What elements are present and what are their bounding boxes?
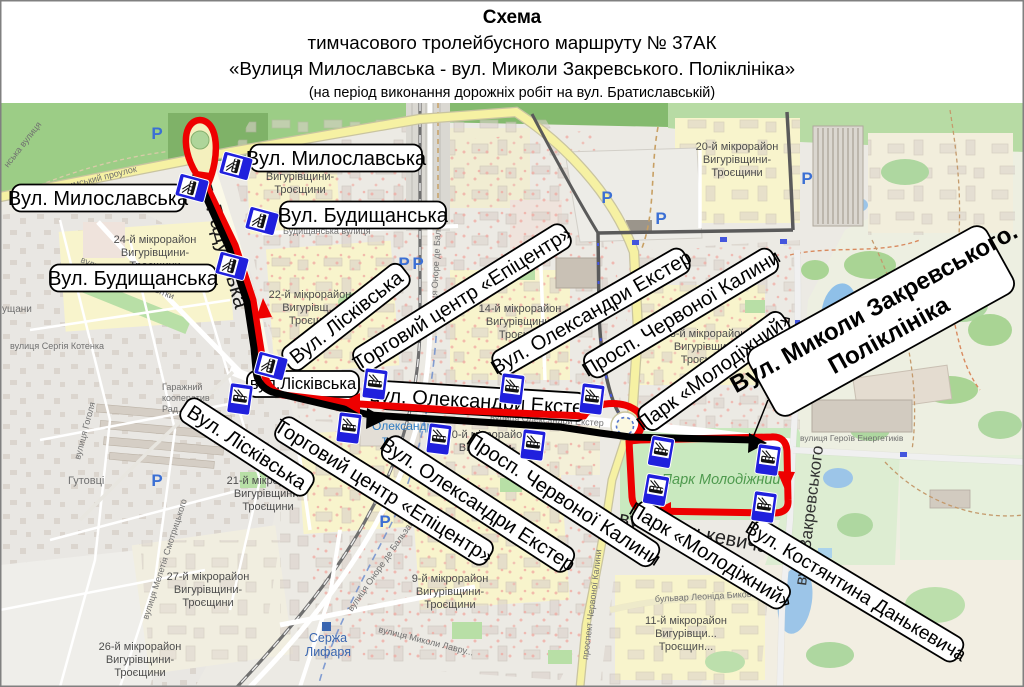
svg-text:P: P [151, 471, 162, 490]
svg-text:Троєщини: Троєщини [711, 167, 762, 179]
svg-text:тимчасового тролейбусного марш: тимчасового тролейбусного маршруту № 37А… [307, 32, 716, 53]
svg-text:вулиця Сергія Котенка: вулиця Сергія Котенка [10, 341, 104, 351]
svg-text:Троєщини: Троєщини [114, 667, 165, 679]
svg-text:Вигурівщини-: Вигурівщини- [703, 154, 772, 166]
svg-text:Троєщини: Троєщини [274, 184, 325, 196]
svg-text:Гутовці: Гутовці [68, 475, 104, 487]
svg-text:ущани: ущани [2, 304, 32, 315]
svg-text:Троєщини: Троєщини [242, 501, 293, 513]
svg-text:Гаражний: Гаражний [162, 382, 202, 392]
svg-text:P: P [412, 254, 423, 273]
svg-text:14-й мікрорайон: 14-й мікрорайон [479, 303, 562, 315]
svg-text:Лифаря: Лифаря [305, 645, 351, 659]
svg-text:11-й мікрорайон: 11-й мікрорайон [645, 615, 727, 627]
svg-text:27-й мікрорайон: 27-й мікрорайон [167, 571, 250, 583]
svg-text:Вул. Милославська: Вул. Милославська [246, 148, 427, 170]
svg-text:22-й мікрорайон: 22-й мікрорайон [269, 289, 352, 301]
svg-text:Вул. Милославська: Вул. Милославська [8, 188, 189, 210]
svg-text:Вул. Будищанська: Вул. Будищанська [278, 205, 449, 227]
svg-text:Вигурівщини-: Вигурівщини- [266, 171, 335, 183]
svg-text:P: P [151, 124, 162, 143]
svg-text:Схема: Схема [483, 7, 542, 28]
svg-text:Вигурівщини-: Вигурівщини- [106, 654, 175, 666]
svg-text:Троєщин...: Троєщин... [659, 641, 713, 653]
svg-text:P: P [379, 512, 390, 531]
svg-text:24-й мікрорайон: 24-й мікрорайон [114, 234, 197, 246]
svg-text:Троєщини: Троєщини [182, 597, 233, 609]
svg-text:P: P [655, 209, 666, 228]
svg-text:Вигурівщини-: Вигурівщини- [121, 247, 190, 259]
svg-text:Вигурівщини-: Вигурівщини- [416, 586, 485, 598]
svg-text:Вул. Будищанська: Вул. Будищанська [48, 268, 219, 290]
svg-text:(на період виконання дорожніх: (на період виконання дорожніх робіт на в… [309, 85, 715, 101]
svg-text:20-й мікрорайон: 20-й мікрорайон [696, 141, 779, 153]
svg-text:P: P [601, 188, 612, 207]
svg-text:вулиця Героїв Енергетиків: вулиця Героїв Енергетиків [800, 433, 904, 443]
svg-text:Сержа: Сержа [309, 631, 347, 645]
svg-text:9-й мікрорайон: 9-й мікрорайон [412, 573, 489, 585]
svg-text:P: P [801, 169, 812, 188]
svg-text:Троєщини: Троєщини [424, 599, 475, 611]
svg-text:26-й мікрорайон: 26-й мікрорайон [99, 641, 182, 653]
svg-text:«Вулиця Милославська - вул. Ми: «Вулиця Милославська - вул. Миколи Закре… [229, 58, 795, 79]
svg-text:Вигурівщини-: Вигурівщини- [174, 584, 243, 596]
svg-text:Вигурівщи...: Вигурівщи... [655, 628, 717, 640]
